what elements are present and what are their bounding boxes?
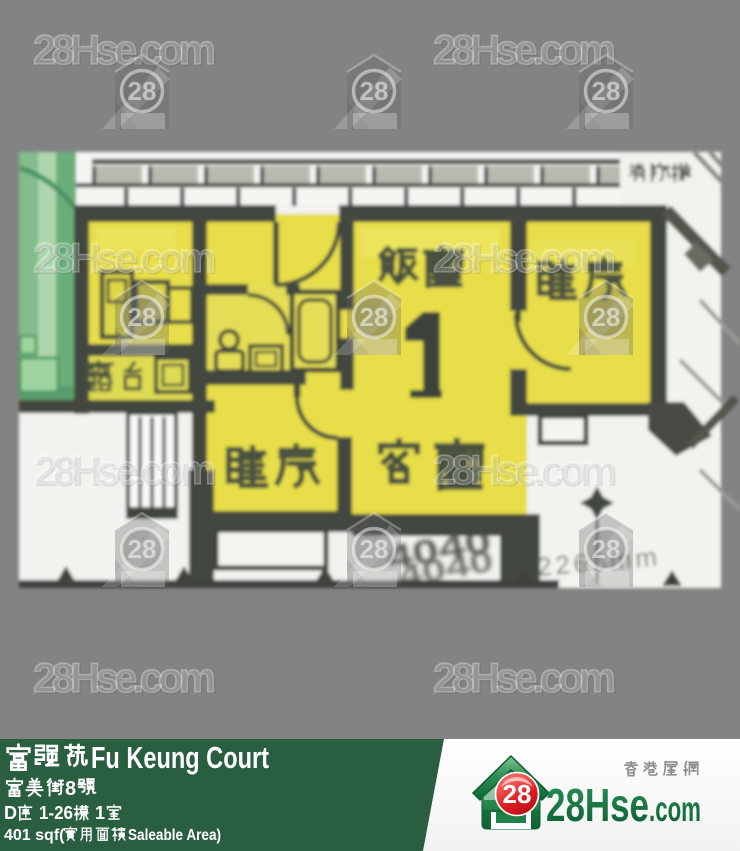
svg-text:28Hse.com: 28Hse.com [33,654,216,701]
svg-text:Fu Keung Court: Fu Keung Court [91,740,269,775]
svg-text:28Hse.com: 28Hse.com [433,654,616,701]
svg-text:28: 28 [360,534,389,564]
svg-text:28: 28 [128,302,157,332]
svg-text:401 sqf(: 401 sqf( [4,827,65,844]
svg-text:8: 8 [65,778,76,800]
svg-text:28Hse.com: 28Hse.com [33,234,216,281]
svg-text:28: 28 [503,779,532,809]
svg-text:1-26: 1-26 [39,803,73,823]
svg-text:28: 28 [360,76,389,106]
svg-text:28: 28 [128,76,157,106]
svg-text:1: 1 [95,803,105,823]
svg-text:28: 28 [592,534,621,564]
svg-text:28Hse.com: 28Hse.com [433,234,616,281]
svg-text:28: 28 [592,76,621,106]
svg-text:28: 28 [360,302,389,332]
svg-text:28Hse.com: 28Hse.com [33,446,216,493]
svg-text:28: 28 [128,534,157,564]
svg-text:28Hse.com: 28Hse.com [433,446,616,493]
svg-text:28: 28 [592,302,621,332]
svg-text:D: D [4,803,17,823]
svg-text:Saleable Area): Saleable Area) [128,827,221,844]
